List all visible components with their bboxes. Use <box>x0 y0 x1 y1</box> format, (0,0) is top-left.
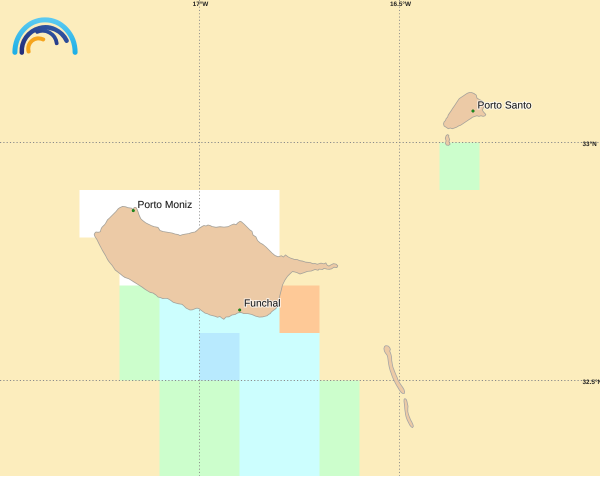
svg-text:Funchal: Funchal <box>244 299 280 310</box>
svg-text:Porto Moniz: Porto Moniz <box>138 200 193 211</box>
svg-text:32.5°N: 32.5°N <box>583 379 600 386</box>
svg-text:Porto Santo: Porto Santo <box>478 101 532 112</box>
svg-text:33°N: 33°N <box>583 141 598 148</box>
svg-text:16.5°W: 16.5°W <box>390 1 412 8</box>
svg-text:17°W: 17°W <box>193 1 210 8</box>
